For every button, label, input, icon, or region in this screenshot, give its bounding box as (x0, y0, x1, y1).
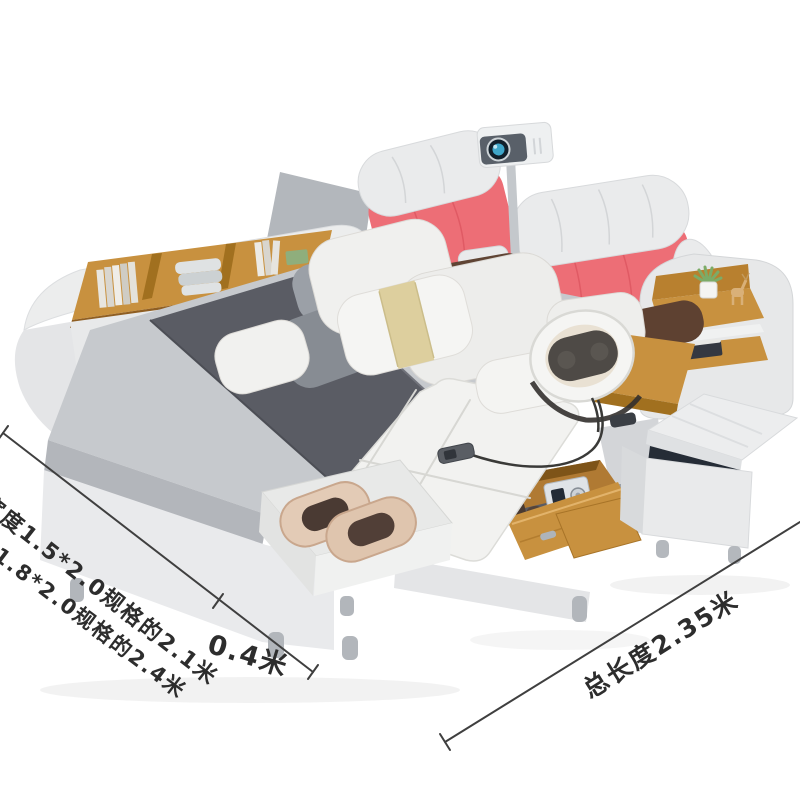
ottoman-side (620, 446, 646, 534)
projector (477, 122, 554, 168)
ottoman-leg (656, 540, 669, 558)
shelf-folded-items (175, 258, 224, 297)
bed-base-right (394, 558, 590, 622)
product-photo: 宽度1.5*2.0规格的2.1米 1.8*2.0规格的2.4米 0.4米 总长度… (0, 0, 800, 800)
storage-ottoman (620, 394, 797, 564)
ottoman-front (642, 458, 752, 548)
ottoman-leg (728, 546, 741, 564)
bed-illustration: 宽度1.5*2.0规格的2.1米 1.8*2.0规格的2.4米 0.4米 总长度… (0, 0, 800, 800)
massager-cable (592, 398, 598, 432)
foot-box-bottom-leg (340, 596, 354, 616)
